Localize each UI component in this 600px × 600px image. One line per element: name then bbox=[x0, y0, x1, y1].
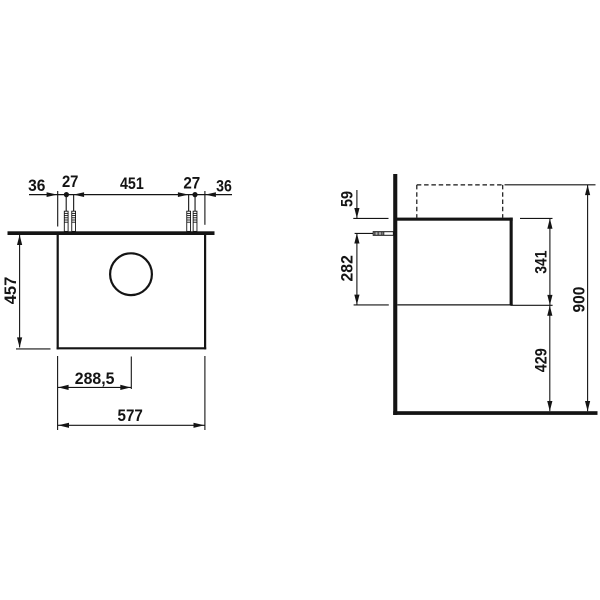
svg-text:59: 59 bbox=[337, 191, 356, 207]
svg-text:451: 451 bbox=[120, 174, 144, 193]
svg-text:27: 27 bbox=[62, 172, 79, 191]
svg-text:457: 457 bbox=[1, 277, 20, 305]
svg-text:429: 429 bbox=[532, 348, 551, 372]
svg-text:577: 577 bbox=[118, 406, 143, 425]
svg-text:341: 341 bbox=[531, 250, 550, 273]
svg-text:36: 36 bbox=[216, 177, 232, 196]
svg-text:27: 27 bbox=[183, 174, 200, 193]
svg-text:282: 282 bbox=[338, 255, 357, 281]
svg-text:900: 900 bbox=[570, 287, 589, 313]
svg-text:288,5: 288,5 bbox=[75, 369, 115, 388]
svg-text:36: 36 bbox=[28, 176, 45, 195]
